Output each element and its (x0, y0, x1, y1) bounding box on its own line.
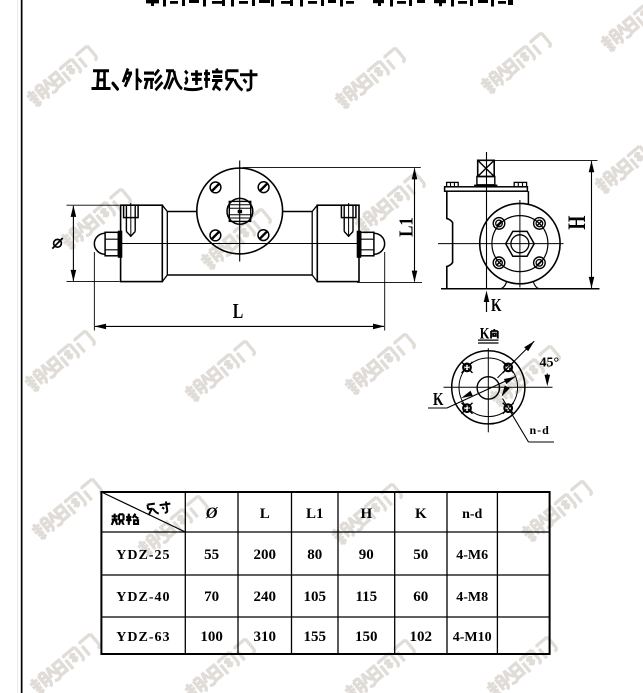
svg-text:4-M10: 4-M10 (453, 630, 492, 645)
svg-text:100: 100 (200, 629, 223, 645)
svg-text:K: K (433, 390, 444, 409)
svg-text:155: 155 (303, 629, 326, 645)
svg-text:4-M6: 4-M6 (456, 548, 488, 563)
svg-text:n-d: n-d (530, 423, 550, 437)
svg-text:n-d: n-d (462, 507, 482, 522)
svg-text:L1: L1 (395, 217, 418, 237)
svg-text:L1: L1 (306, 506, 324, 522)
svg-text:200: 200 (253, 547, 276, 563)
svg-text:K: K (415, 506, 427, 522)
svg-text:115: 115 (355, 589, 377, 605)
svg-text:YDZ-63: YDZ-63 (116, 630, 170, 645)
svg-text:YDZ-40: YDZ-40 (116, 590, 170, 605)
svg-text:50: 50 (413, 547, 428, 563)
svg-text:YDZ-25: YDZ-25 (116, 548, 170, 563)
svg-text:150: 150 (355, 629, 378, 645)
svg-text:240: 240 (253, 589, 276, 605)
svg-text:4-M8: 4-M8 (456, 590, 488, 605)
svg-text:L: L (233, 300, 244, 324)
svg-text:L: L (260, 506, 270, 522)
svg-text:102: 102 (410, 629, 433, 645)
svg-text:55: 55 (204, 547, 219, 563)
svg-text:80: 80 (307, 547, 322, 563)
svg-text:60: 60 (413, 589, 428, 605)
svg-text:K: K (491, 296, 502, 315)
svg-text:45°: 45° (540, 356, 560, 371)
svg-text:H: H (360, 506, 372, 522)
svg-text:310: 310 (253, 629, 276, 645)
svg-text:105: 105 (303, 589, 326, 605)
svg-text:90: 90 (359, 547, 374, 563)
svg-text:H: H (562, 216, 591, 230)
svg-text:70: 70 (204, 589, 219, 605)
svg-text:Ø: Ø (205, 505, 219, 522)
